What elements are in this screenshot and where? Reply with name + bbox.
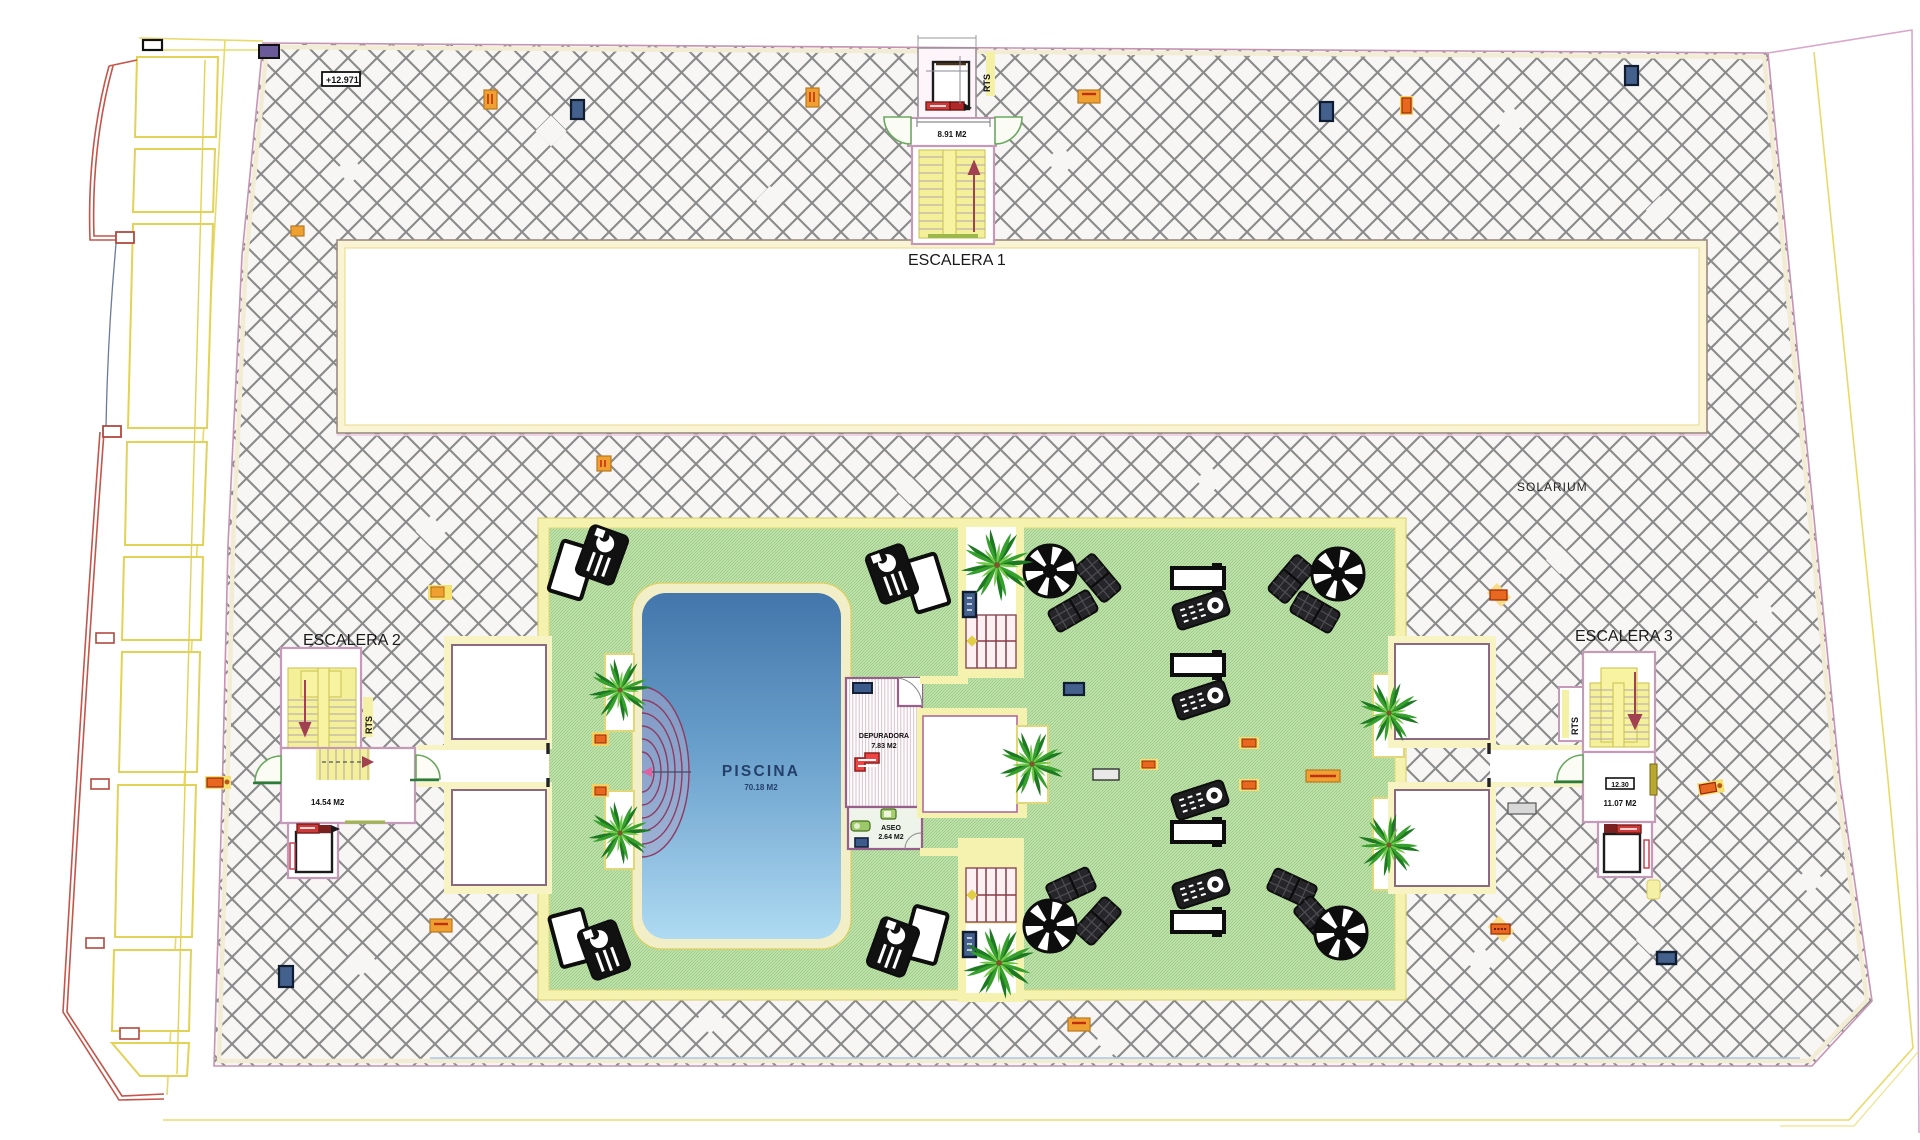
svg-text:RTS: RTS bbox=[982, 74, 992, 92]
svg-text:70.18 M2: 70.18 M2 bbox=[744, 783, 778, 792]
svg-text:PISCINA: PISCINA bbox=[722, 763, 800, 780]
svg-text:ESCALERA 1: ESCALERA 1 bbox=[908, 252, 1006, 269]
svg-text:ASEO: ASEO bbox=[881, 825, 901, 832]
svg-text:+12.971: +12.971 bbox=[326, 75, 359, 85]
svg-text:ESCALERA 2: ESCALERA 2 bbox=[303, 632, 401, 649]
svg-text:7.83 M2: 7.83 M2 bbox=[871, 743, 896, 750]
svg-text:12.30: 12.30 bbox=[1611, 782, 1629, 789]
svg-text:RTS: RTS bbox=[364, 716, 374, 734]
svg-text:ESCALERA 3: ESCALERA 3 bbox=[1575, 628, 1673, 645]
svg-text:2.64 M2: 2.64 M2 bbox=[878, 834, 903, 841]
svg-text:SOLARIUM: SOLARIUM bbox=[1517, 480, 1588, 494]
svg-text:RTS: RTS bbox=[1570, 717, 1580, 735]
svg-text:11.07 M2: 11.07 M2 bbox=[1604, 799, 1637, 808]
svg-text:8.91 M2: 8.91 M2 bbox=[938, 130, 967, 139]
svg-text:DEPURADORA: DEPURADORA bbox=[859, 733, 909, 740]
svg-text:14.54 M2: 14.54 M2 bbox=[311, 798, 345, 807]
